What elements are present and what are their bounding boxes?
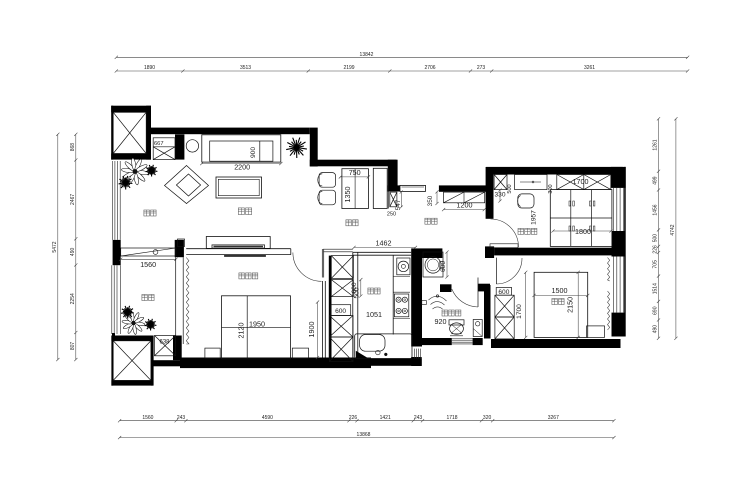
svg-text:1200: 1200 (457, 201, 473, 210)
svg-text:1514: 1514 (653, 283, 659, 294)
svg-text:1350: 1350 (343, 187, 352, 203)
svg-text:500: 500 (353, 287, 360, 298)
svg-text:4742: 4742 (670, 224, 676, 235)
svg-text:490: 490 (70, 248, 76, 257)
svg-text:900: 900 (250, 147, 257, 158)
svg-text:350: 350 (427, 195, 434, 206)
svg-text:1500: 1500 (552, 286, 568, 295)
svg-text:1051: 1051 (366, 310, 382, 319)
svg-text:300: 300 (548, 184, 554, 193)
svg-text:690: 690 (653, 306, 659, 315)
svg-text:2199: 2199 (343, 65, 354, 71)
svg-text:250: 250 (387, 212, 396, 218)
svg-text:868: 868 (70, 143, 76, 152)
svg-text:1800: 1800 (575, 227, 591, 236)
svg-text:13868: 13868 (357, 432, 371, 438)
svg-text:4590: 4590 (262, 415, 273, 421)
svg-text:3513: 3513 (240, 65, 251, 71)
svg-text:1950: 1950 (249, 320, 265, 329)
svg-text:2120: 2120 (237, 323, 246, 339)
svg-text:2467: 2467 (70, 194, 76, 205)
svg-text:667: 667 (154, 141, 164, 147)
svg-text:273: 273 (477, 65, 486, 71)
svg-text:243: 243 (414, 415, 423, 421)
svg-text:320: 320 (483, 415, 492, 421)
svg-text:1560: 1560 (140, 260, 156, 269)
svg-text:1261: 1261 (653, 139, 659, 150)
svg-text:1560: 1560 (142, 415, 153, 421)
svg-text:547: 547 (395, 199, 402, 210)
svg-text:920: 920 (435, 317, 447, 326)
svg-text:638: 638 (159, 339, 170, 345)
svg-text:2254: 2254 (70, 293, 76, 304)
svg-text:499: 499 (653, 176, 659, 185)
svg-text:13842: 13842 (360, 52, 374, 58)
svg-text:1456: 1456 (653, 204, 659, 215)
svg-text:600: 600 (440, 261, 447, 272)
svg-text:705: 705 (653, 260, 659, 269)
svg-text:3261: 3261 (584, 65, 595, 71)
svg-text:490: 490 (653, 325, 659, 334)
svg-text:500: 500 (507, 184, 513, 193)
svg-text:500: 500 (653, 234, 659, 243)
svg-text:1957: 1957 (530, 210, 537, 225)
svg-text:5472: 5472 (52, 241, 58, 252)
svg-text:3267: 3267 (548, 415, 559, 421)
svg-text:226: 226 (653, 245, 659, 254)
svg-text:1890: 1890 (144, 65, 155, 71)
svg-text:1700: 1700 (516, 304, 523, 319)
svg-text:1900: 1900 (307, 322, 316, 338)
svg-text:1700: 1700 (573, 177, 589, 186)
svg-text:226: 226 (349, 415, 358, 421)
svg-text:807: 807 (70, 342, 76, 351)
svg-text:2150: 2150 (566, 297, 575, 313)
svg-text:1421: 1421 (380, 415, 391, 421)
svg-text:243: 243 (177, 415, 186, 421)
svg-text:2706: 2706 (424, 65, 435, 71)
svg-text:1462: 1462 (376, 239, 392, 248)
svg-text:1718: 1718 (446, 415, 457, 421)
svg-text:2200: 2200 (234, 162, 250, 171)
svg-text:750: 750 (349, 168, 361, 177)
svg-text:600: 600 (335, 308, 346, 315)
